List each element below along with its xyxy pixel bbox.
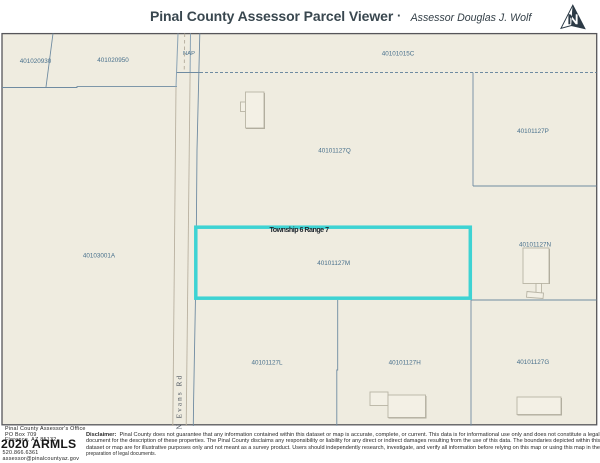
svg-text:Township 6 Range 7: Township 6 Range 7 [269,226,329,234]
svg-text:40101127Q: 40101127Q [318,148,351,155]
svg-text:40101127G: 40101127G [517,359,550,366]
svg-text:401020950: 401020950 [97,57,129,64]
svg-text:40101127H: 40101127H [389,360,422,367]
svg-text:40103001A: 40103001A [83,252,116,259]
svg-text:40101127M: 40101127M [317,260,350,267]
svg-text:401020930: 401020930 [20,58,52,65]
svg-text:N Evans Rd: N Evans Rd [176,374,184,430]
svg-text:40101127L: 40101127L [251,360,283,367]
svg-text:NAP: NAP [183,51,195,57]
svg-text:40101015C: 40101015C [382,51,415,58]
svg-text:40101127N: 40101127N [519,242,552,249]
svg-text:40101127P: 40101127P [517,128,549,135]
